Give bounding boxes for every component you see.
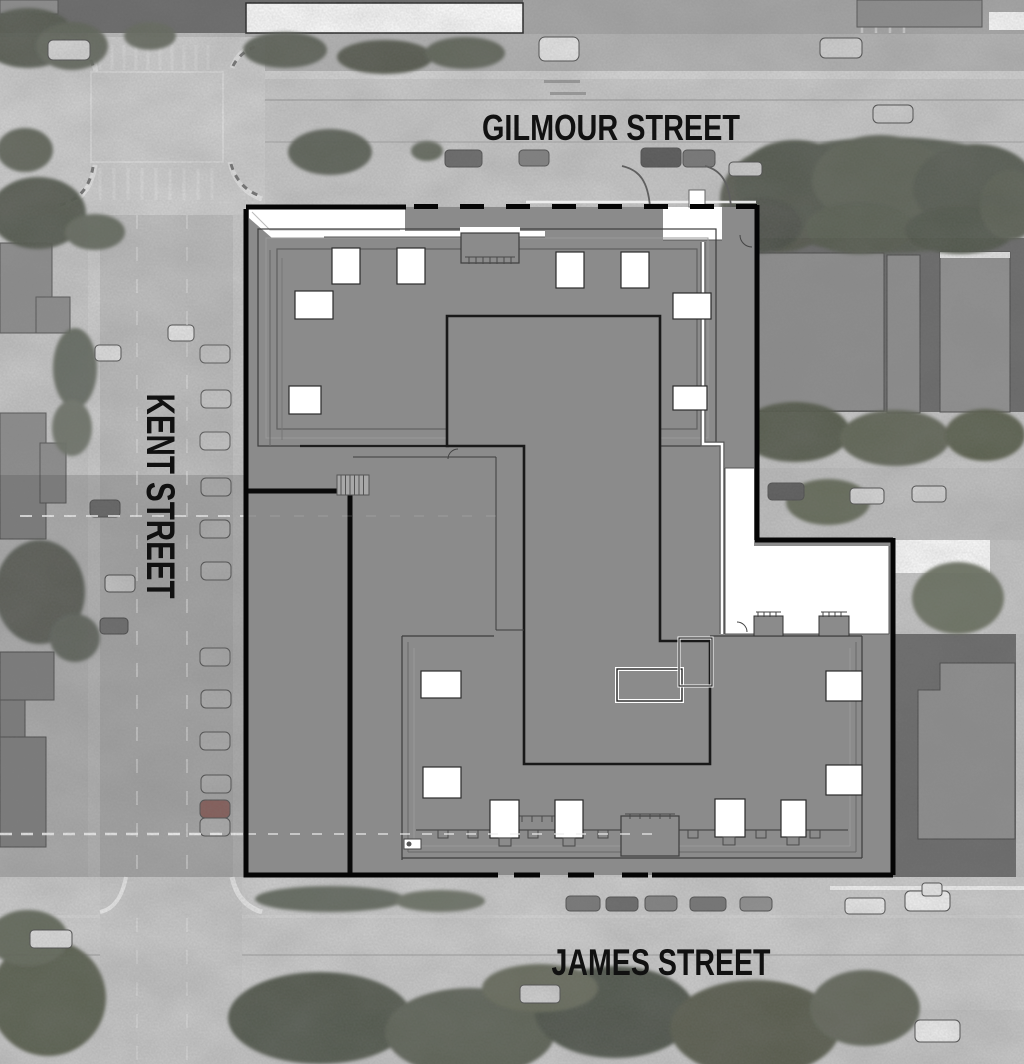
- svg-text:JAMES STREET: JAMES STREET: [552, 942, 771, 983]
- svg-text:GILMOUR STREET: GILMOUR STREET: [482, 107, 740, 148]
- svg-text:KENT STREET: KENT STREET: [138, 394, 182, 599]
